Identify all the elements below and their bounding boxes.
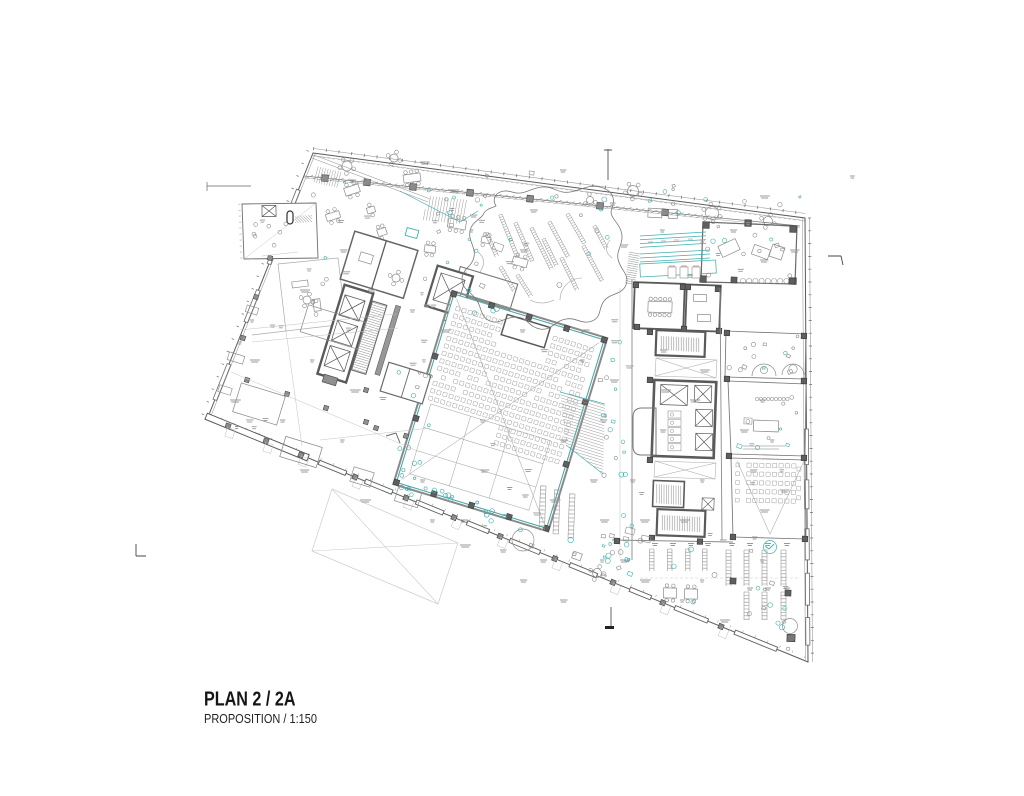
svg-text:PLAN 2 / 2A: PLAN 2 / 2A <box>204 689 296 711</box>
svg-text:PROPOSITION / 1:150: PROPOSITION / 1:150 <box>204 711 317 726</box>
